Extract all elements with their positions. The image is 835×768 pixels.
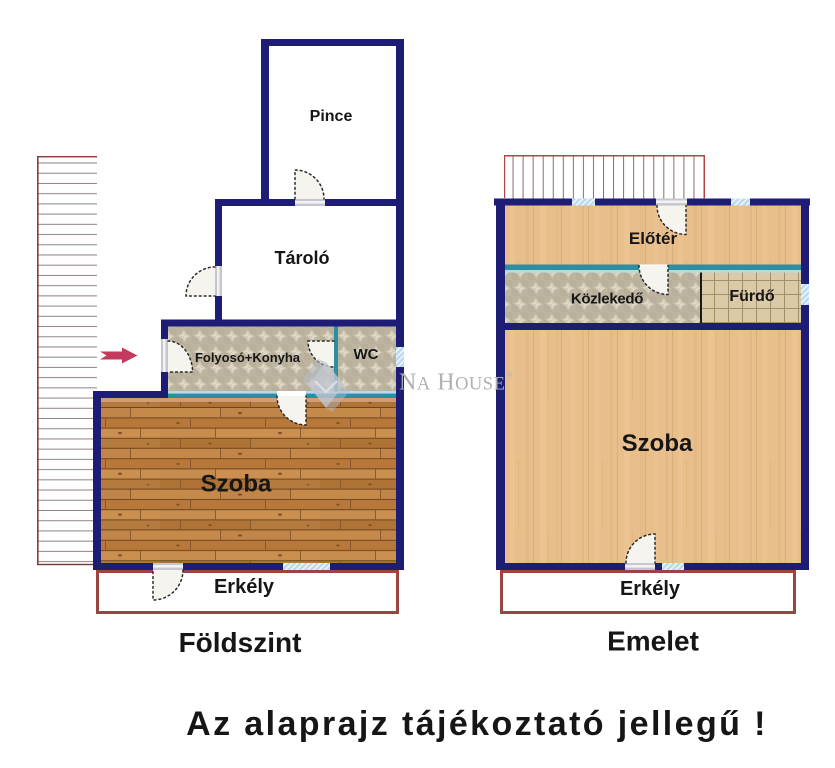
svg-text:Folyosó+Konyha: Folyosó+Konyha xyxy=(195,350,301,365)
svg-text:Erkély: Erkély xyxy=(214,576,275,598)
svg-text:®: ® xyxy=(507,370,513,379)
svg-text:Az alaprajz tájékoztató jelleg: Az alaprajz tájékoztató jellegű ! xyxy=(186,705,768,743)
svg-text:Fürdő: Fürdő xyxy=(729,288,775,305)
svg-text:Erkély: Erkély xyxy=(620,578,681,600)
svg-text:Közlekedő: Közlekedő xyxy=(571,291,643,308)
svg-text:Előtér: Előtér xyxy=(629,229,678,248)
svg-text:NA HOUSE: NA HOUSE xyxy=(399,370,505,396)
svg-text:Pince: Pince xyxy=(310,108,353,125)
svg-text:Szoba: Szoba xyxy=(622,430,693,457)
svg-text:Tároló: Tároló xyxy=(274,248,329,268)
svg-text:Szoba: Szoba xyxy=(201,471,272,498)
svg-text:WC: WC xyxy=(354,346,379,363)
svg-text:Földszint: Földszint xyxy=(179,627,302,658)
svg-text:Emelet: Emelet xyxy=(607,626,699,657)
